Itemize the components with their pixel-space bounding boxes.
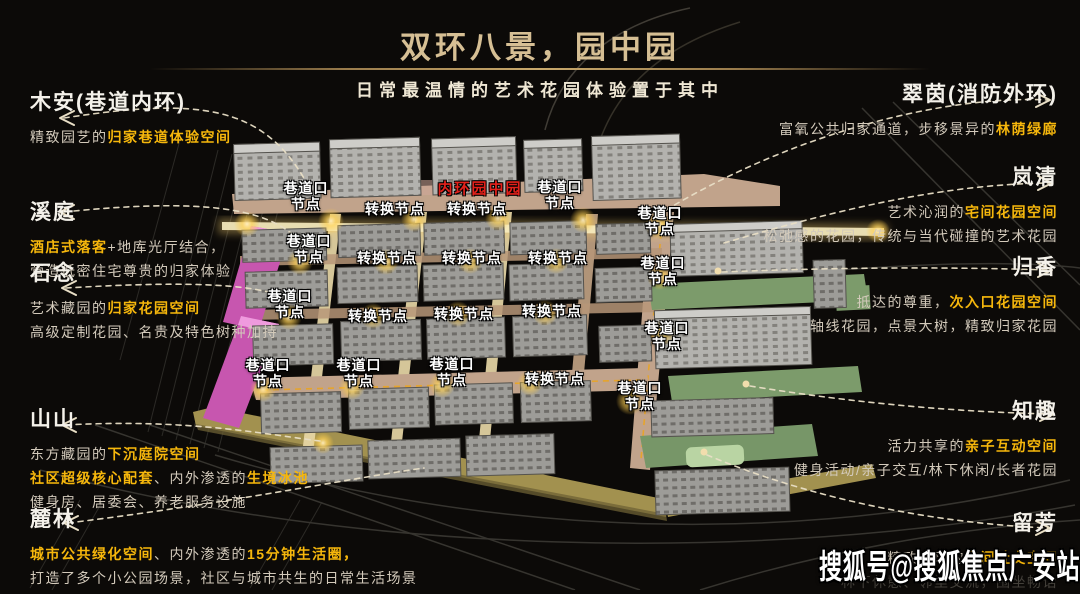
annotation-description: 精致园艺的归家巷道体验空间 [30, 125, 232, 149]
header: 双环八景，园中园 日常最温情的艺术花园体验置于其中 [0, 0, 1080, 67]
watermark: 搜狐号@搜狐焦点广安站 [819, 540, 1080, 588]
annotation-cuiyin: 翠茵(消防外环)富氧公共归家通道，步移景异的林荫绿廊 [779, 78, 1058, 141]
annotation-guixiang: 归香抵达的尊重，次入口花园空间轴线花园，点景大树，精致归家花园 [810, 251, 1058, 338]
annotation-title: 知趣 [794, 395, 1058, 425]
annotation-shinian: 石念艺术藏园的归家花园空间高级定制花园、名贵及特色树种加持 [30, 257, 278, 344]
annotation-description: 城市公共绿化空间、内外渗透的15分钟生活圈，打造了多个小公园场景，社区与城市共生… [30, 542, 418, 590]
annotation-title: 石念 [30, 257, 278, 287]
annotation-muan: 木安(巷道内环)精致园艺的归家巷道体验空间 [30, 86, 232, 149]
annotation-shanshan: 山山东方藏园的下沉庭院空间社区超级核心配套、内外渗透的生境冰池健身房、居委会、养… [30, 403, 309, 514]
annotation-description: 抵达的尊重，次入口花园空间轴线花园，点景大树，精致归家花园 [810, 290, 1058, 338]
page-title: 双环八景，园中园 [0, 0, 1080, 67]
annotation-title: 归香 [810, 251, 1058, 281]
annotation-description: 活力共享的亲子互动空间健身活动/亲子交互/林下休闲/长者花园 [794, 434, 1058, 482]
annotation-title: 翠茵(消防外环) [779, 78, 1058, 108]
annotation-title: 溪庭 [30, 196, 232, 226]
annotation-title: 木安(巷道内环) [30, 86, 232, 116]
map-center-label: 内环园中园 [437, 178, 522, 199]
annotation-zhiqu: 知趣活力共享的亲子互动空间健身活动/亲子交互/林下休闲/长者花园 [794, 395, 1058, 482]
annotation-lanqing: 岚清艺术沁润的宅间花园空间松弛感的花园，传统与当代碰撞的艺术花园 [764, 161, 1059, 248]
poster: 双环八景，园中园 日常最温情的艺术花园体验置于其中 木安(巷道内环)精致园艺的归… [0, 0, 1080, 590]
annotation-title: 留芳 [841, 507, 1058, 537]
annotation-title: 山山 [30, 403, 309, 433]
annotation-description: 艺术沁润的宅间花园空间松弛感的花园，传统与当代碰撞的艺术花园 [764, 200, 1059, 248]
annotation-description: 艺术藏园的归家花园空间高级定制花园、名贵及特色树种加持 [30, 296, 278, 344]
page-subtitle: 日常最温情的艺术花园体验置于其中 [356, 76, 724, 101]
annotation-title: 岚清 [764, 161, 1059, 191]
annotation-title: 麓林 [30, 503, 418, 533]
title-divider [150, 68, 930, 70]
annotation-description: 富氧公共归家通道，步移景异的林荫绿廊 [779, 117, 1058, 141]
annotation-lulin: 麓林城市公共绿化空间、内外渗透的15分钟生活圈，打造了多个小公园场景，社区与城市… [30, 503, 418, 590]
